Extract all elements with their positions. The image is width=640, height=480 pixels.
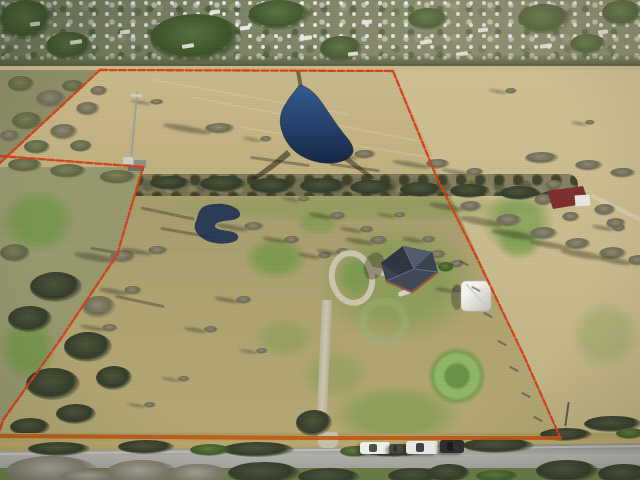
aerial-property-photo (0, 0, 640, 480)
boundary-segment-bottom (0, 436, 560, 438)
boundary-segment-lower_left (0, 167, 143, 430)
boundary-segment-jog (0, 156, 143, 167)
boundary-overlay (0, 0, 640, 480)
boundary-segment-upper_left (0, 70, 100, 163)
boundary-segment-right (393, 71, 560, 437)
boundary-segment-top (100, 70, 393, 71)
